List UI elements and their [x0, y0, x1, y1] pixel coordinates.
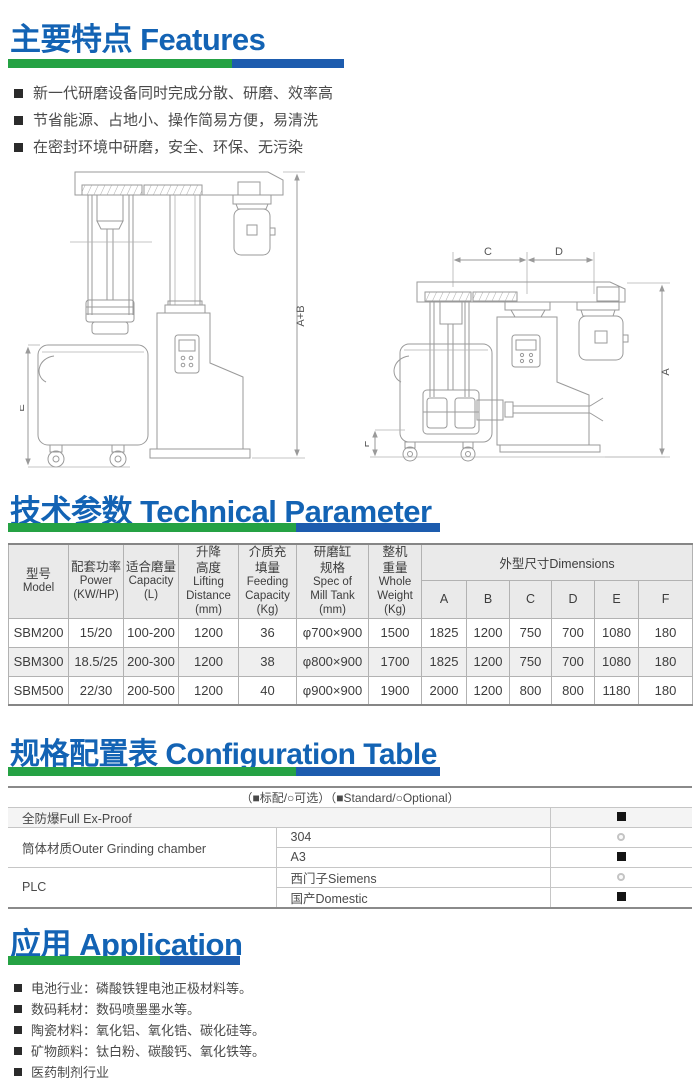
features-section-title: 主要特点 Features: [10, 14, 265, 59]
table-cell: 15/20: [69, 618, 124, 647]
table-cell: SBM200: [9, 618, 69, 647]
machine-outline: [370, 252, 670, 461]
table-cell: φ700×900: [297, 618, 369, 647]
configuration-table: （■标配/○可选）（■Standard/○Optional）全防爆Full Ex…: [8, 786, 692, 909]
technical-parameter-table: 型号Model配套功率Power (KW/HP)适合磨量Capacity (L)…: [8, 543, 693, 706]
config-option-label: 西门子Siemens: [276, 867, 550, 887]
dimension-label-f: F: [365, 440, 372, 447]
column-header: 配套功率Power (KW/HP): [69, 544, 124, 618]
table-cell: 1180: [595, 676, 639, 705]
table-cell: 1200: [179, 618, 239, 647]
table-cell: 1500: [369, 618, 422, 647]
config-row: PLC西门子Siemens: [8, 867, 692, 887]
table-cell: 1200: [179, 676, 239, 705]
bullet-text: 数码耗材：数码喷墨墨水等。: [31, 999, 200, 1020]
application-bullet-list: 电池行业：磷酸铁锂电池正极材料等。数码耗材：数码喷墨墨水等。陶瓷材料：氧化铝、氧…: [12, 978, 265, 1083]
table-cell: 750: [510, 618, 552, 647]
table-cell: 1825: [422, 647, 467, 676]
config-row: 全防爆Full Ex-Proof: [8, 807, 692, 827]
table-cell: 40: [239, 676, 297, 705]
config-marker-cell: [550, 847, 692, 867]
dimension-label-d: D: [555, 246, 563, 258]
machine-outline: [28, 172, 305, 467]
table-cell: 1700: [369, 647, 422, 676]
optional-marker-icon: [617, 833, 625, 841]
dimension-label-a: A: [660, 368, 672, 376]
config-item-label: 筒体材质Outer Grinding chamber: [8, 827, 276, 867]
table-cell: 1200: [467, 647, 510, 676]
table-cell: 1080: [595, 647, 639, 676]
machine-drawing-side-view: C D A F: [365, 232, 695, 467]
bullet-square-icon: [14, 984, 22, 992]
bullet-text: 陶瓷材料：氧化铝、氧化锆、碳化硅等。: [31, 1020, 265, 1041]
config-marker-cell: [550, 807, 692, 827]
bullet-item: 陶瓷材料：氧化铝、氧化锆、碳化硅等。: [12, 1020, 265, 1041]
bullet-square-icon: [14, 1068, 22, 1076]
config-row: 筒体材质Outer Grinding chamber304: [8, 827, 692, 847]
config-option-label: 304: [276, 827, 550, 847]
table-cell: 2000: [422, 676, 467, 705]
column-header: 研磨缸 规格Spec of Mill Tank (mm): [297, 544, 369, 618]
table-cell: φ800×900: [297, 647, 369, 676]
bullet-item: 医药制剂行业: [12, 1062, 265, 1083]
column-header: 整机 重量Whole Weight (Kg): [369, 544, 422, 618]
bullet-text: 医药制剂行业: [31, 1062, 109, 1083]
bullet-square-icon: [14, 1026, 22, 1034]
bullet-text: 节省能源、占地小、操作简易方便，易清洗: [33, 107, 318, 134]
legend-text: （■标配/○可选）（■Standard/○Optional）: [8, 787, 692, 807]
bullet-square-icon: [14, 143, 23, 152]
bullet-square-icon: [14, 89, 23, 98]
table-cell: 1200: [179, 647, 239, 676]
dimension-label-c: C: [484, 246, 492, 258]
optional-marker-icon: [617, 873, 625, 881]
config-option-label: A3: [276, 847, 550, 867]
table-cell: 1200: [467, 676, 510, 705]
blue-bar-segment: [160, 956, 240, 965]
table-cell: 1825: [422, 618, 467, 647]
table-cell: 200-500: [124, 676, 179, 705]
config-marker-cell: [550, 887, 692, 908]
dimension-column-header: F: [639, 581, 693, 619]
bullet-text: 矿物颜料：钛白粉、碳酸钙、氧化铁等。: [31, 1041, 265, 1062]
column-header: 升降 高度Lifting Distance (mm): [179, 544, 239, 618]
config-item-label: 全防爆Full Ex-Proof: [8, 807, 550, 827]
table-cell: 18.5/25: [69, 647, 124, 676]
dimension-column-header: E: [595, 581, 639, 619]
config-item-label: PLC: [8, 867, 276, 908]
table-cell: 800: [552, 676, 595, 705]
bullet-item: 新一代研磨设备同时完成分散、研磨、效率高: [12, 80, 333, 107]
features-title-zh: 主要特点: [10, 22, 132, 57]
table-cell: 22/30: [69, 676, 124, 705]
green-bar-segment: [8, 956, 160, 965]
green-bar-segment: [8, 767, 296, 776]
config-marker-cell: [550, 867, 692, 887]
bullet-item: 数码耗材：数码喷墨墨水等。: [12, 999, 265, 1020]
bullet-square-icon: [14, 1047, 22, 1055]
bullet-square-icon: [14, 116, 23, 125]
dimension-column-header: D: [552, 581, 595, 619]
bullet-text: 电池行业：磷酸铁锂电池正极材料等。: [31, 978, 252, 999]
config-option-label: 国产Domestic: [276, 887, 550, 908]
table-cell: 1200: [467, 618, 510, 647]
table-row: SBM20015/20100-200120036φ700×90015001825…: [9, 618, 693, 647]
standard-marker-icon: [617, 852, 626, 861]
bullet-text: 在密封环境中研磨，安全、环保、无污染: [33, 134, 303, 161]
bullet-text: 新一代研磨设备同时完成分散、研磨、效率高: [33, 80, 333, 107]
table-cell: 38: [239, 647, 297, 676]
technical-underline: [8, 523, 440, 532]
features-bullet-list: 新一代研磨设备同时完成分散、研磨、效率高节省能源、占地小、操作简易方便，易清洗在…: [12, 80, 333, 161]
features-title-en: Features: [140, 22, 265, 57]
dimension-label-a-plus-b: A+B: [295, 305, 307, 326]
table-cell: 180: [639, 676, 693, 705]
product-datasheet-page: 主要特点 Features 新一代研磨设备同时完成分散、研磨、效率高节省能源、占…: [0, 0, 700, 1091]
table-cell: 700: [552, 647, 595, 676]
table-cell: 700: [552, 618, 595, 647]
bullet-item: 电池行业：磷酸铁锂电池正极材料等。: [12, 978, 265, 999]
table-row: SBM30018.5/25200-300120038φ800×900170018…: [9, 647, 693, 676]
table-cell: 200-300: [124, 647, 179, 676]
column-header: 型号Model: [9, 544, 69, 618]
green-bar-segment: [8, 59, 232, 68]
application-underline: [8, 956, 240, 965]
table-cell: 180: [639, 647, 693, 676]
column-header: 介质充 填量Feeding Capacity (Kg): [239, 544, 297, 618]
table-cell: 36: [239, 618, 297, 647]
standard-marker-icon: [617, 812, 626, 821]
table-cell: φ900×900: [297, 676, 369, 705]
bullet-item: 矿物颜料：钛白粉、碳酸钙、氧化铁等。: [12, 1041, 265, 1062]
blue-bar-segment: [296, 523, 440, 532]
blue-bar-segment: [296, 767, 440, 776]
features-underline: [8, 59, 344, 68]
table-cell: 1080: [595, 618, 639, 647]
table-cell: SBM500: [9, 676, 69, 705]
table-cell: SBM300: [9, 647, 69, 676]
machine-drawing-front-view: A+B E: [20, 168, 310, 468]
dimensions-group-header: 外型尺寸Dimensions: [422, 544, 693, 581]
configuration-underline: [8, 767, 440, 776]
bullet-item: 在密封环境中研磨，安全、环保、无污染: [12, 134, 333, 161]
dimension-label-e: E: [20, 404, 27, 411]
blue-bar-segment: [232, 59, 344, 68]
table-cell: 750: [510, 647, 552, 676]
table-cell: 180: [639, 618, 693, 647]
green-bar-segment: [8, 523, 296, 532]
bullet-item: 节省能源、占地小、操作简易方便，易清洗: [12, 107, 333, 134]
standard-marker-icon: [617, 892, 626, 901]
table-cell: 1900: [369, 676, 422, 705]
table-cell: 100-200: [124, 618, 179, 647]
table-row: SBM50022/30200-500120040φ900×90019002000…: [9, 676, 693, 705]
config-marker-cell: [550, 827, 692, 847]
dimension-column-header: C: [510, 581, 552, 619]
bullet-square-icon: [14, 1005, 22, 1013]
dimension-column-header: B: [467, 581, 510, 619]
column-header: 适合磨量Capacity (L): [124, 544, 179, 618]
dimension-column-header: A: [422, 581, 467, 619]
table-cell: 800: [510, 676, 552, 705]
